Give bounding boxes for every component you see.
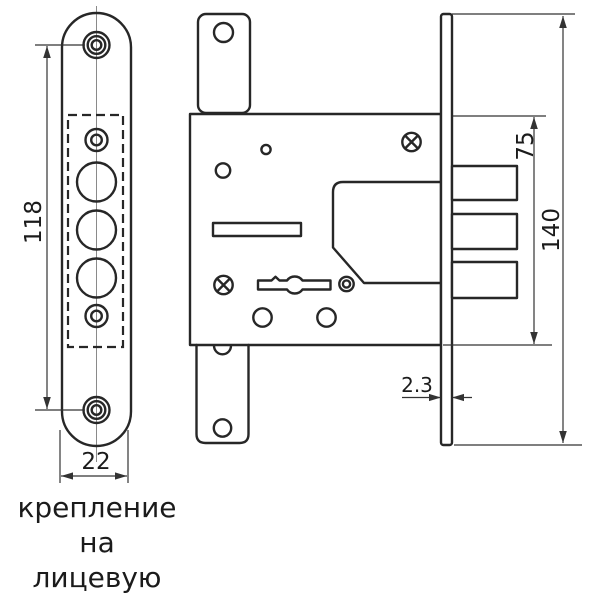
top-tab-hole (214, 23, 233, 42)
dim-75-arrow-up (530, 117, 538, 129)
bolt-3 (452, 262, 517, 298)
top-mount-tab (198, 14, 250, 113)
bolt-carrier-block (333, 182, 441, 283)
bolt-1 (452, 166, 517, 200)
dim-118-arrow-down (43, 397, 51, 409)
dim-23-arrow-left (452, 394, 464, 401)
dimension-118: 118 (21, 45, 85, 410)
bottom-tab-upper-hole (214, 346, 231, 355)
dim-22-arrow-right (115, 472, 127, 479)
caption-line-1: крепление (12, 490, 182, 525)
body-ring-hole-inner (343, 280, 350, 287)
body-pin-hole (216, 163, 230, 177)
caption: крепление на лицевую планку (12, 490, 182, 600)
dimension-2-3: 2.3 (401, 373, 472, 401)
body-pin-hole-small (261, 145, 270, 154)
lock-body-outline (190, 114, 441, 345)
dim-75-arrow-down (530, 332, 538, 344)
keyway-slot (258, 276, 331, 293)
dim-22-arrow-left (61, 472, 73, 479)
body-bottom-hole-right (317, 308, 335, 326)
caption-line-3: планку (12, 595, 182, 600)
dim-140-arrow-down (559, 431, 567, 443)
faceplate-front-view (62, 6, 131, 462)
body-ring-hole-outer (339, 277, 353, 291)
dim-22-label: 22 (81, 449, 110, 475)
dim-118-arrow-up (43, 46, 51, 58)
dim-140-label: 140 (539, 208, 565, 252)
dim-118-label: 118 (21, 200, 47, 244)
faceplate-edge-view (441, 14, 517, 445)
body-bottom-hole-left (253, 308, 271, 326)
bolt-2 (452, 214, 517, 249)
lock-technical-drawing: 118 22 75 140 2.3 крепление на лицевую (0, 0, 600, 600)
bottom-mount-tab (197, 345, 249, 443)
dim-23-label: 2.3 (401, 373, 433, 397)
faceplate-edge-outline (441, 14, 452, 445)
bottom-tab-hole (214, 419, 231, 436)
caption-line-2: на лицевую (12, 525, 182, 595)
body-rect-slot (213, 223, 301, 236)
dim-75-label: 75 (513, 131, 539, 160)
dim-140-arrow-up (559, 16, 567, 28)
